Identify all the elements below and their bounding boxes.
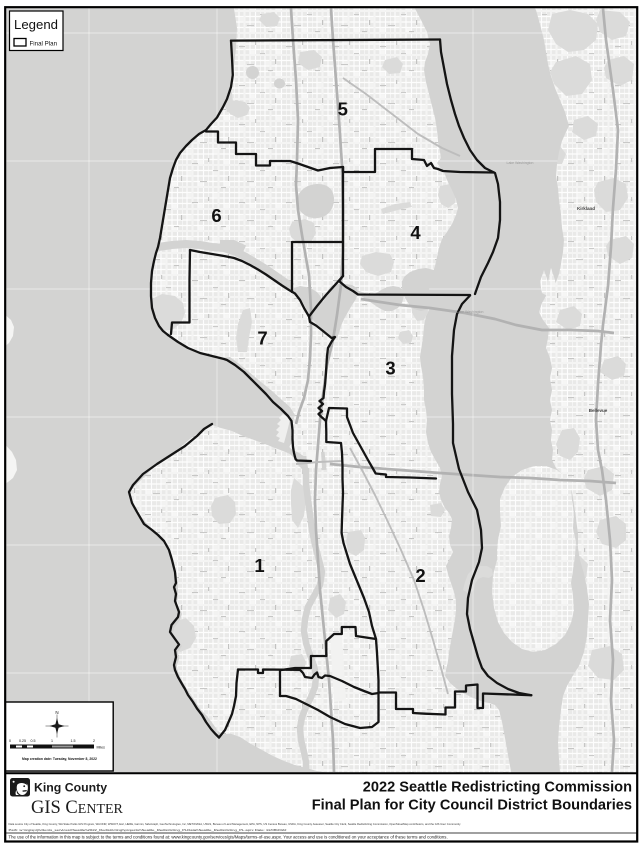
svg-text:Legend: Legend [14, 17, 58, 32]
svg-text:0.25: 0.25 [19, 739, 26, 743]
svg-text:Bellevue: Bellevue [589, 408, 608, 413]
svg-text:Kirkland: Kirkland [577, 206, 595, 211]
svg-text:1.5: 1.5 [71, 739, 76, 743]
svg-text:N: N [55, 710, 58, 715]
svg-text:1: 1 [51, 739, 53, 743]
svg-text:The use of the information in: The use of the information in this map i… [9, 835, 448, 840]
svg-text:2: 2 [93, 739, 95, 743]
svg-text:Data source City of Seattle, K: Data source City of Seattle, King County… [9, 822, 461, 826]
svg-text:6: 6 [211, 205, 221, 226]
svg-text:0.5: 0.5 [31, 739, 36, 743]
svg-text:2: 2 [415, 565, 425, 586]
svg-text:Final Plan: Final Plan [30, 41, 58, 48]
svg-text:4: 4 [410, 222, 421, 243]
svg-text:3: 3 [385, 358, 395, 379]
svg-text:Path: w:\\cgisprj\\clients_ser: Path: w:\\cgisprj\\clients_services\\Sea… [9, 828, 287, 832]
svg-text:Miles: Miles [97, 746, 106, 750]
svg-text:King County: King County [34, 781, 107, 795]
svg-text:Lake Washington: Lake Washington [457, 310, 484, 314]
svg-text:1: 1 [254, 555, 264, 576]
svg-text:5: 5 [338, 99, 348, 120]
svg-text:2022 Seattle Redistricting Com: 2022 Seattle Redistricting Commission [363, 780, 632, 796]
svg-text:Lake Washington: Lake Washington [507, 161, 534, 165]
svg-text:Final Plan for City Council Di: Final Plan for City Council District Bou… [312, 798, 632, 814]
svg-text:7: 7 [257, 328, 267, 349]
svg-text:Map creation date: Tuesday, No: Map creation date: Tuesday, November 8, … [22, 757, 97, 761]
svg-text:0: 0 [9, 739, 11, 743]
